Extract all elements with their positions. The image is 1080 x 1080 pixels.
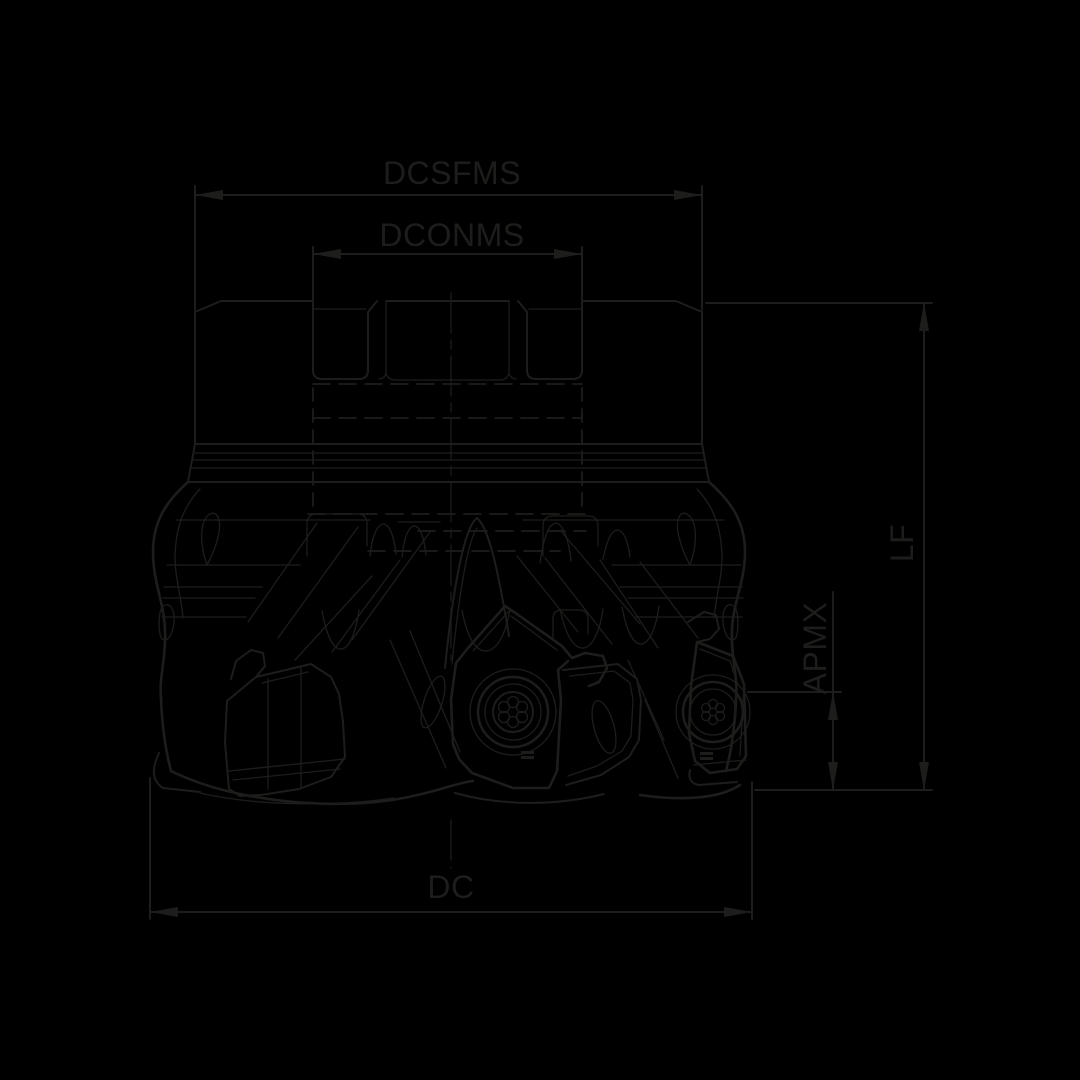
lf-arrow-bottom (919, 762, 929, 790)
screw-center (470, 669, 556, 755)
screw-head-outer (478, 677, 548, 747)
dc-arrow-left (150, 907, 178, 917)
insert-right-marking-2 (700, 757, 713, 760)
insert-left-inner-edges (262, 668, 308, 789)
insert-left-pocket (225, 650, 345, 796)
screw-right (676, 675, 750, 749)
insert-center-marking-2 (521, 756, 534, 759)
flute-walls-lower (390, 631, 678, 778)
pocket-opening-right (543, 516, 598, 556)
ear-lobe-left (202, 513, 220, 565)
screw-right-socket (690, 689, 736, 735)
screw-right-countersink (676, 675, 750, 749)
torx-lobe-3 (499, 702, 510, 713)
dimension-dconms: DCONMS (313, 217, 582, 301)
insert-right-marking-1 (700, 752, 713, 755)
technical-drawing-canvas: DCSFMS DCONMS LF APMX DC (0, 0, 1080, 1080)
collar-side-left (188, 444, 195, 482)
chip-gash-right (587, 698, 620, 755)
profile-left (153, 482, 188, 771)
flute-diagonals-right (517, 530, 698, 648)
groove-line-1 (176, 520, 724, 522)
block-outline-right (582, 301, 702, 444)
drive-slot-left (313, 301, 377, 379)
bottom-rim-left (171, 771, 473, 804)
drive-slot-left-wall (379, 301, 386, 379)
chip-gash-left (416, 674, 450, 731)
insert-left-tab (231, 650, 265, 679)
dim-label-dconms: DCONMS (379, 217, 524, 253)
seat-blob-right (553, 610, 588, 640)
screw-socket (493, 692, 533, 732)
arch-4 (540, 523, 571, 563)
profile-inner-left (175, 489, 200, 618)
flute-diagonals-left (248, 523, 430, 660)
insert-right-shelf (694, 760, 746, 765)
slot-floor-front-edge (386, 373, 509, 380)
arch-5 (603, 530, 630, 559)
screw-countersink (470, 669, 556, 755)
apmx-arrow-up (828, 692, 838, 720)
insert-left-shelf (229, 759, 345, 780)
bottom-rim-center (455, 793, 604, 803)
dcsfms-arrow-left (195, 190, 223, 200)
collar-rings (188, 444, 709, 482)
dconms-arrow-left (313, 249, 341, 259)
insert-center (451, 606, 641, 788)
drive-slot-right (518, 301, 582, 379)
dimension-apmx: APMX (748, 592, 841, 790)
side-lobe-left (159, 605, 174, 640)
insert-right (676, 612, 750, 785)
dimension-lf: LF (706, 303, 932, 790)
side-lobe-right (723, 605, 738, 640)
profile-inner-right (697, 489, 722, 618)
insert-center-edge-thickness (473, 611, 557, 651)
tulip-3 (560, 609, 603, 648)
apmx-arrow-down (828, 762, 838, 790)
dc-arrow-right (724, 907, 752, 917)
bottom-rim-right (640, 785, 740, 798)
insert-left-outline (225, 664, 345, 796)
lf-arrow-top (919, 303, 929, 331)
dim-label-dc: DC (427, 869, 474, 905)
torx-lobe-6 (517, 712, 528, 723)
dim-label-lf: LF (884, 524, 920, 562)
drive-slot-right-wall (509, 301, 516, 379)
dcsfms-arrow-right (674, 190, 702, 200)
dconms-arrow-right (554, 249, 582, 259)
collar-side-right (702, 444, 709, 482)
ear-lobe-right (677, 513, 695, 565)
tulip-1 (322, 610, 359, 649)
tulip-4 (622, 606, 659, 644)
insert-right-outline (689, 642, 746, 773)
face-mill-drawing: DCSFMS DCONMS LF APMX DC (0, 0, 1080, 1080)
block-outline-left (195, 301, 313, 444)
dim-label-dcsfms: DCSFMS (383, 155, 521, 191)
flute-details (248, 514, 698, 778)
dim-label-apmx: APMX (797, 602, 833, 695)
